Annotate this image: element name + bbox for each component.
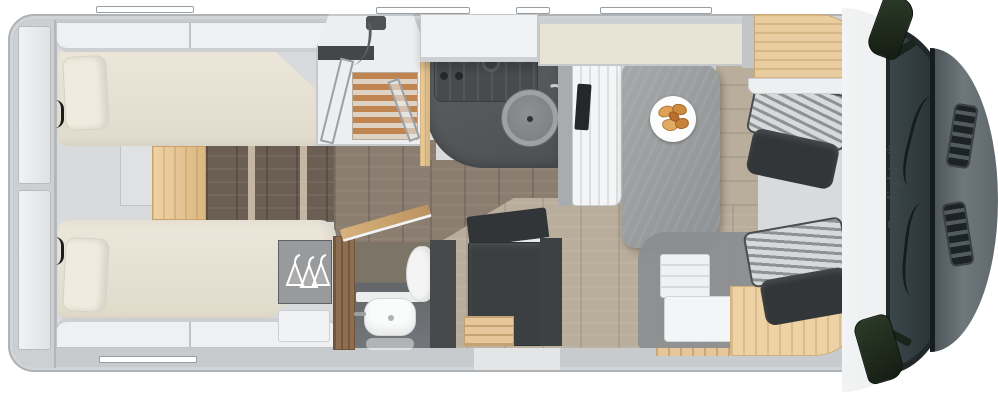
entrance-wall-opening bbox=[474, 348, 560, 370]
dinette-bench-backrest bbox=[558, 58, 572, 206]
basin-reflection bbox=[366, 338, 414, 350]
plate-of-croissants bbox=[650, 96, 696, 142]
basin-drain-icon bbox=[388, 315, 394, 321]
kitchen-side-panel bbox=[420, 48, 430, 166]
pillow bbox=[62, 237, 110, 313]
front-hood bbox=[930, 48, 998, 352]
brand-logo-icon: ✳ bbox=[885, 143, 902, 156]
roof-window-strip bbox=[96, 6, 194, 13]
stove-knob-icon bbox=[455, 72, 463, 80]
dinette-table bbox=[622, 62, 720, 248]
washroom-partition bbox=[430, 240, 456, 348]
roof-window-strip bbox=[376, 7, 470, 14]
entry-steps bbox=[464, 316, 514, 346]
bed-podium-wood bbox=[152, 146, 206, 220]
locker-divider bbox=[189, 23, 191, 48]
roof-window-strip bbox=[600, 7, 712, 14]
bed-base-divider bbox=[248, 146, 255, 222]
overhead-locker-kitchen bbox=[420, 14, 538, 62]
bed-base-divider bbox=[300, 146, 307, 222]
wardrobe-hangers bbox=[278, 240, 332, 304]
bed-foot-chest bbox=[278, 310, 330, 342]
garage-shelf bbox=[18, 26, 51, 184]
bed-headboard-cabinet bbox=[120, 144, 154, 206]
motorhome-floorplan: Sunlight ✳ bbox=[0, 0, 998, 400]
frosted-door bbox=[279, 241, 331, 303]
roof-window-strip bbox=[99, 356, 197, 363]
washroom-wall-panel bbox=[333, 236, 355, 350]
brand-lettering: Sunlight ✳ bbox=[884, 102, 904, 270]
rear-garage bbox=[14, 20, 56, 368]
drop-down-bed bbox=[538, 18, 750, 66]
stove-knob-icon bbox=[440, 72, 448, 80]
brand-name: Sunlight bbox=[885, 165, 902, 229]
dinette-bench-cushion bbox=[572, 60, 622, 206]
roof-window-strip bbox=[516, 7, 550, 14]
entry-side-panel bbox=[540, 238, 562, 346]
bed-steps-floor bbox=[206, 146, 334, 222]
basin-faucet-icon bbox=[354, 312, 366, 316]
side-seat-chest bbox=[660, 254, 710, 298]
pillow bbox=[62, 55, 110, 131]
sink-drain-icon bbox=[527, 116, 533, 122]
garage-shelf bbox=[18, 190, 51, 350]
overhead-locker-top bbox=[56, 22, 338, 52]
locker-divider bbox=[189, 322, 191, 347]
